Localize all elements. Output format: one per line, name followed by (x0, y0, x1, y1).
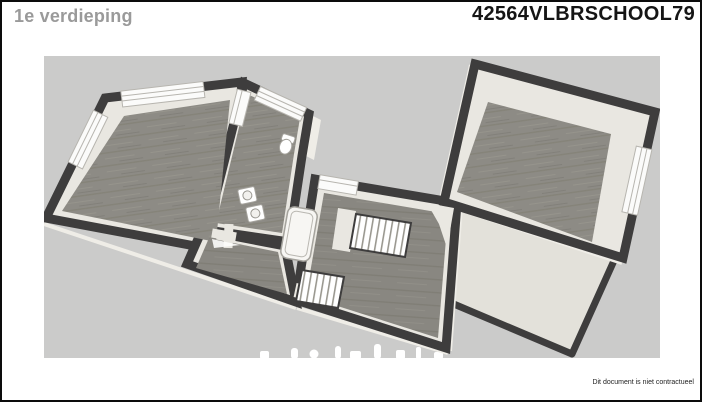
disclaimer-text: Dit document is niet contractueel (592, 379, 694, 386)
document-code: 42564VLBRSCHOOL79 (472, 3, 695, 26)
floorplan-render (44, 56, 660, 358)
floorplan-document: 1e verdieping 42564VLBRSCHOOL79 (0, 0, 702, 402)
watermark-fragment (260, 344, 443, 358)
page-title: 1e verdieping (14, 6, 133, 27)
sink (238, 186, 258, 204)
staircase-lower (296, 270, 344, 308)
sink (246, 204, 266, 222)
